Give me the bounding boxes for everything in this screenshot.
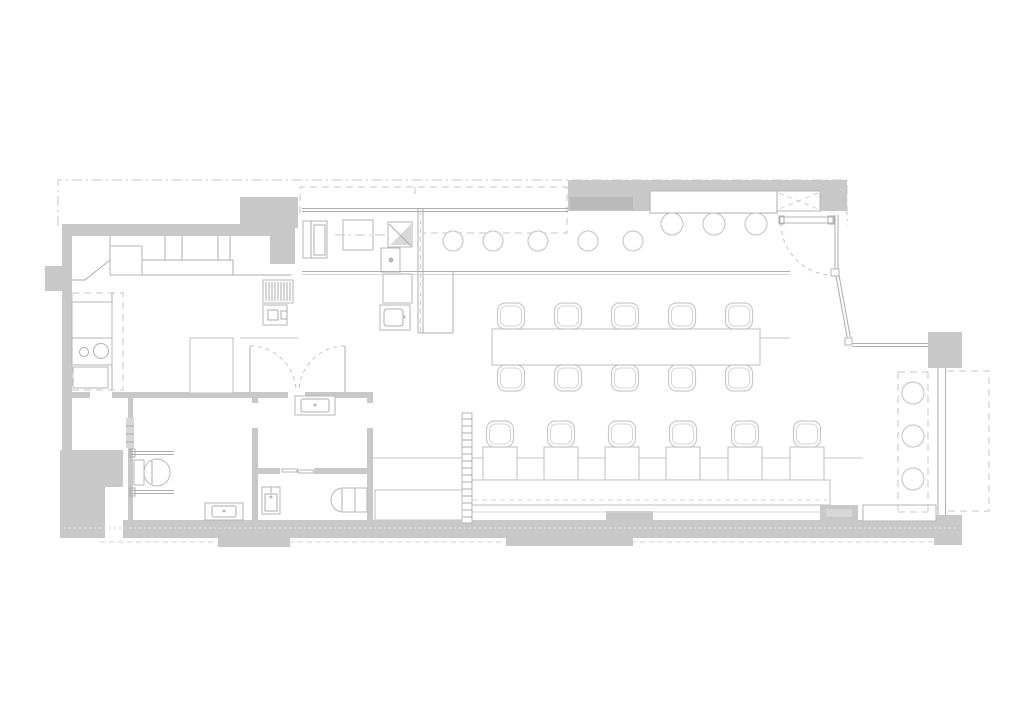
dishwasher: [388, 222, 412, 247]
wc: [262, 469, 367, 514]
sliding-door: [282, 469, 313, 473]
toilet-accessible: [134, 459, 170, 486]
dining-chair: [498, 365, 525, 391]
dining-chair: [726, 303, 753, 329]
door-swing-arc-left: [250, 346, 296, 392]
radiator: [462, 413, 472, 523]
wc-lobby: [295, 396, 335, 415]
two-top-table: [790, 447, 824, 480]
dining-chair: [732, 421, 759, 447]
window-stool: [902, 425, 924, 447]
sw-wall-mass-b: [60, 487, 105, 538]
upright-fridge: [303, 221, 327, 258]
base-cabinet: [72, 302, 112, 338]
two-top-tables: [483, 447, 824, 480]
dining-chair: [555, 303, 582, 329]
two-top-table: [605, 447, 639, 480]
door-opening-storeroom: [90, 391, 112, 399]
kitchen-island: [190, 338, 233, 393]
door-opening-accessible-wc: [251, 403, 259, 428]
dining-chair: [555, 365, 582, 391]
work-table: [383, 274, 412, 303]
low-cabinet: [375, 490, 462, 520]
dining-room: [370, 303, 863, 523]
wall-pier: [270, 228, 295, 264]
window-sill-cabinet: [863, 505, 936, 521]
washbasin: [205, 503, 243, 520]
bar-stool: [443, 231, 463, 251]
bar-niche: [650, 191, 777, 213]
dining-chair: [612, 303, 639, 329]
dining-chair: [726, 365, 753, 391]
kitchen-sink-unit: [72, 338, 112, 365]
two-top-chairs: [487, 421, 821, 447]
se-corner-column: [934, 515, 962, 545]
bar-stool: [528, 231, 548, 251]
toilet: [331, 488, 367, 512]
south-wall-pilaster: [606, 511, 653, 538]
kitchen-north-counter: [72, 236, 292, 280]
grab-bar: [130, 488, 174, 496]
banquette-bench: [470, 480, 830, 512]
bar-stools: [443, 213, 767, 251]
bar-stool: [661, 213, 683, 235]
sw-wall-mass-a: [60, 450, 123, 487]
window-stool: [902, 468, 924, 490]
mullion: [831, 269, 839, 276]
dining-chair: [609, 421, 636, 447]
dining-chair: [612, 365, 639, 391]
floor-plan-svg: Restaurant floor plan — monochrome archi…: [0, 0, 1024, 724]
double-swing-door: [240, 338, 345, 392]
bar-stool: [703, 213, 725, 235]
east-corner-column: [928, 332, 962, 368]
bar: [302, 213, 790, 275]
bar-stool: [483, 231, 503, 251]
west-wall: [62, 224, 72, 462]
two-top-table: [728, 447, 762, 480]
exterior-zone-outline: [947, 371, 989, 511]
east-window: [938, 368, 946, 515]
shopfront-glass-angled: [836, 275, 851, 342]
shopfront-glass-north: [835, 215, 838, 271]
base-cabinet-low: [73, 367, 108, 388]
dining-chair: [669, 365, 696, 391]
south-wall: [123, 520, 830, 538]
counter-appliance: [110, 246, 142, 275]
cabinet-with-knob: [381, 248, 400, 272]
south-wall-tab-west: [218, 538, 290, 547]
dining-chair: [794, 421, 821, 447]
vanity-washbasin: [295, 396, 335, 415]
bar-stool: [578, 231, 598, 251]
under-counter-unit: [263, 305, 287, 325]
window-bar: [898, 372, 928, 512]
dining-chair: [669, 303, 696, 329]
kitchen-west-counter: [72, 293, 123, 390]
two-top-table: [666, 447, 700, 480]
mullion: [845, 338, 852, 345]
duct-pier-inner: [826, 509, 852, 517]
prep-sink: [380, 305, 410, 330]
entrance-door-swing-arc: [781, 223, 833, 275]
accessible-wc: [130, 449, 243, 520]
accessible-wc-wall: [128, 398, 133, 520]
grill-unit: [263, 280, 293, 303]
wall-step-block: [240, 197, 298, 228]
small-washbasin: [262, 487, 280, 514]
beam-line: [418, 208, 453, 333]
door-jamb-strip: [126, 418, 134, 448]
door-leaves: [250, 346, 345, 392]
bar-north-wall-pier: [570, 197, 633, 210]
dining-chair: [487, 421, 514, 447]
two-top-table: [483, 447, 517, 480]
west-wall-pilaster: [45, 266, 62, 291]
door-swing-arc-right: [299, 346, 345, 392]
shopfront-glass-east: [852, 344, 928, 347]
two-top-table: [544, 447, 578, 480]
entrance-door-leaf: [780, 217, 833, 223]
dining-chair: [670, 421, 697, 447]
counter-corner-diagonal: [72, 260, 110, 280]
floor-plan-canvas: Restaurant floor plan — monochrome archi…: [0, 0, 1024, 724]
dining-chair: [498, 303, 525, 329]
bar-stool: [623, 231, 643, 251]
bar-north-wall-line: [302, 209, 568, 212]
window-stool: [902, 382, 924, 404]
entrance: [779, 216, 834, 275]
communal-table: [492, 329, 760, 365]
skylight-outline: [300, 187, 567, 233]
door-opening-corridor: [366, 403, 374, 428]
south-wall-tab-mid: [506, 538, 633, 546]
bar-stool: [745, 213, 767, 235]
grab-bar: [130, 449, 174, 457]
dining-chair: [548, 421, 575, 447]
